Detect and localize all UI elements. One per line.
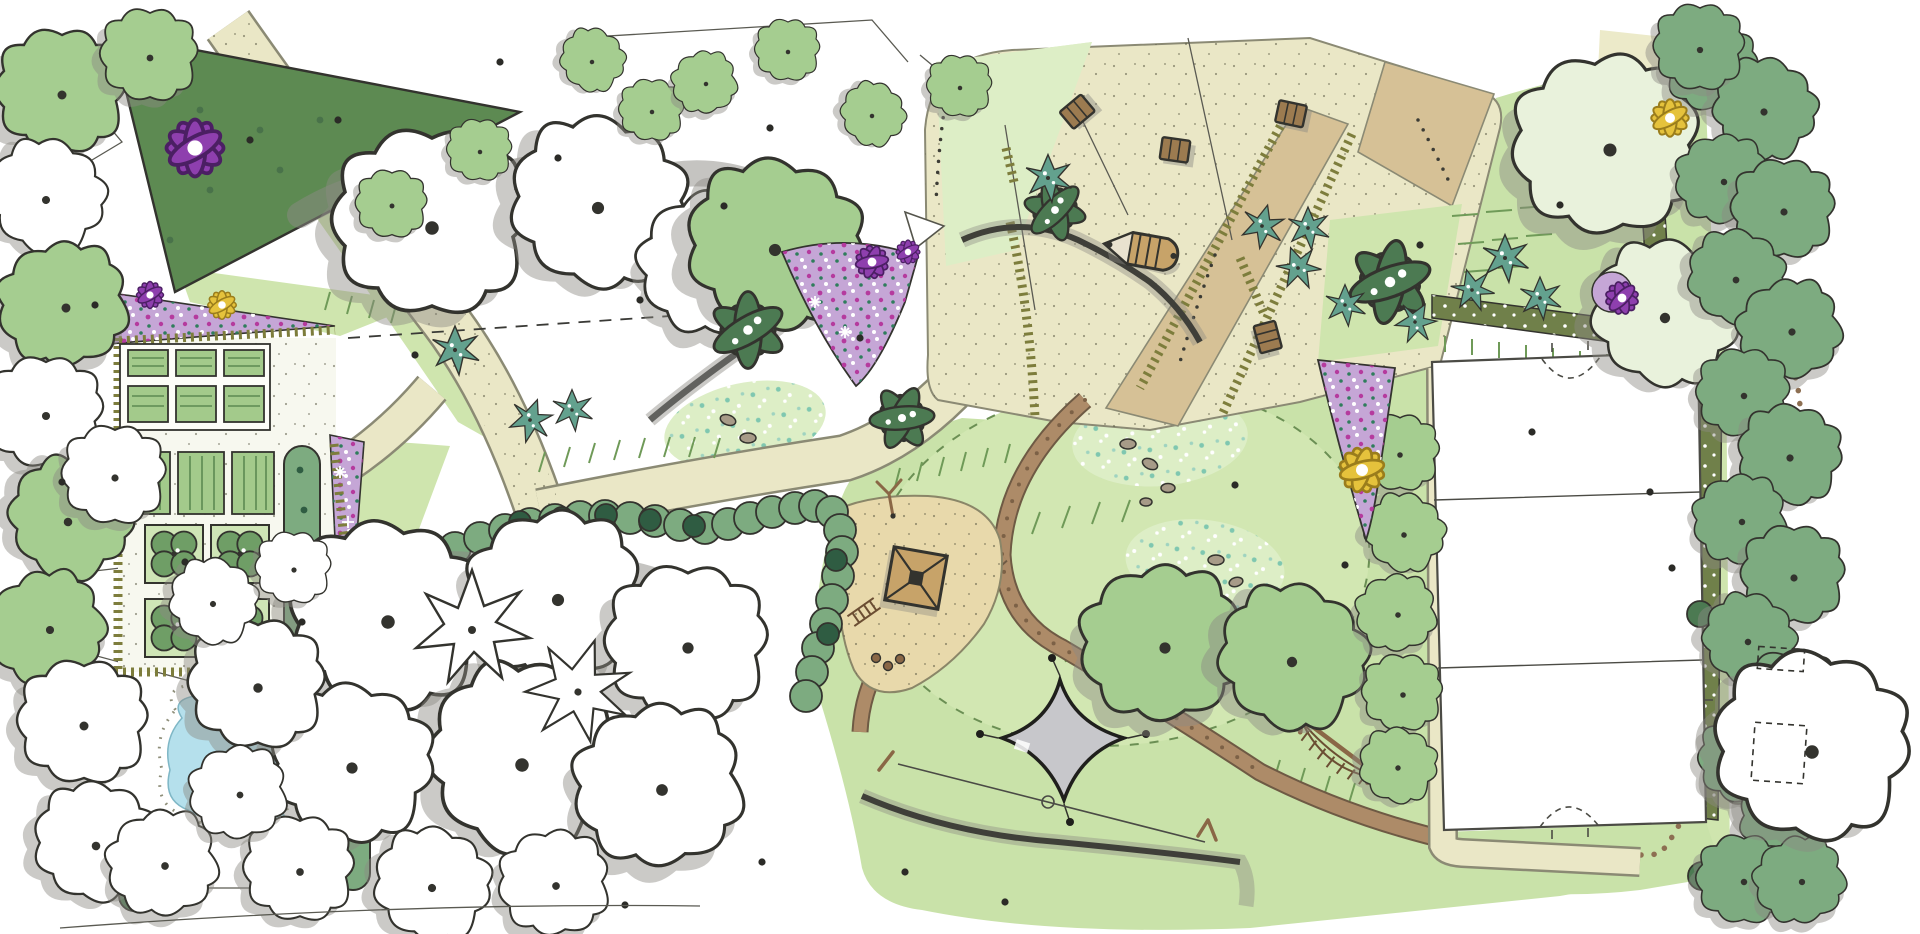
play-tower [879, 546, 947, 617]
bench [1159, 137, 1196, 167]
pitch-surface [1432, 352, 1706, 830]
master-plan-drawing [0, 0, 1920, 934]
plan-canvas [0, 0, 1920, 934]
raised-beds-row1 [128, 350, 264, 422]
sports-field [1423, 341, 1713, 839]
